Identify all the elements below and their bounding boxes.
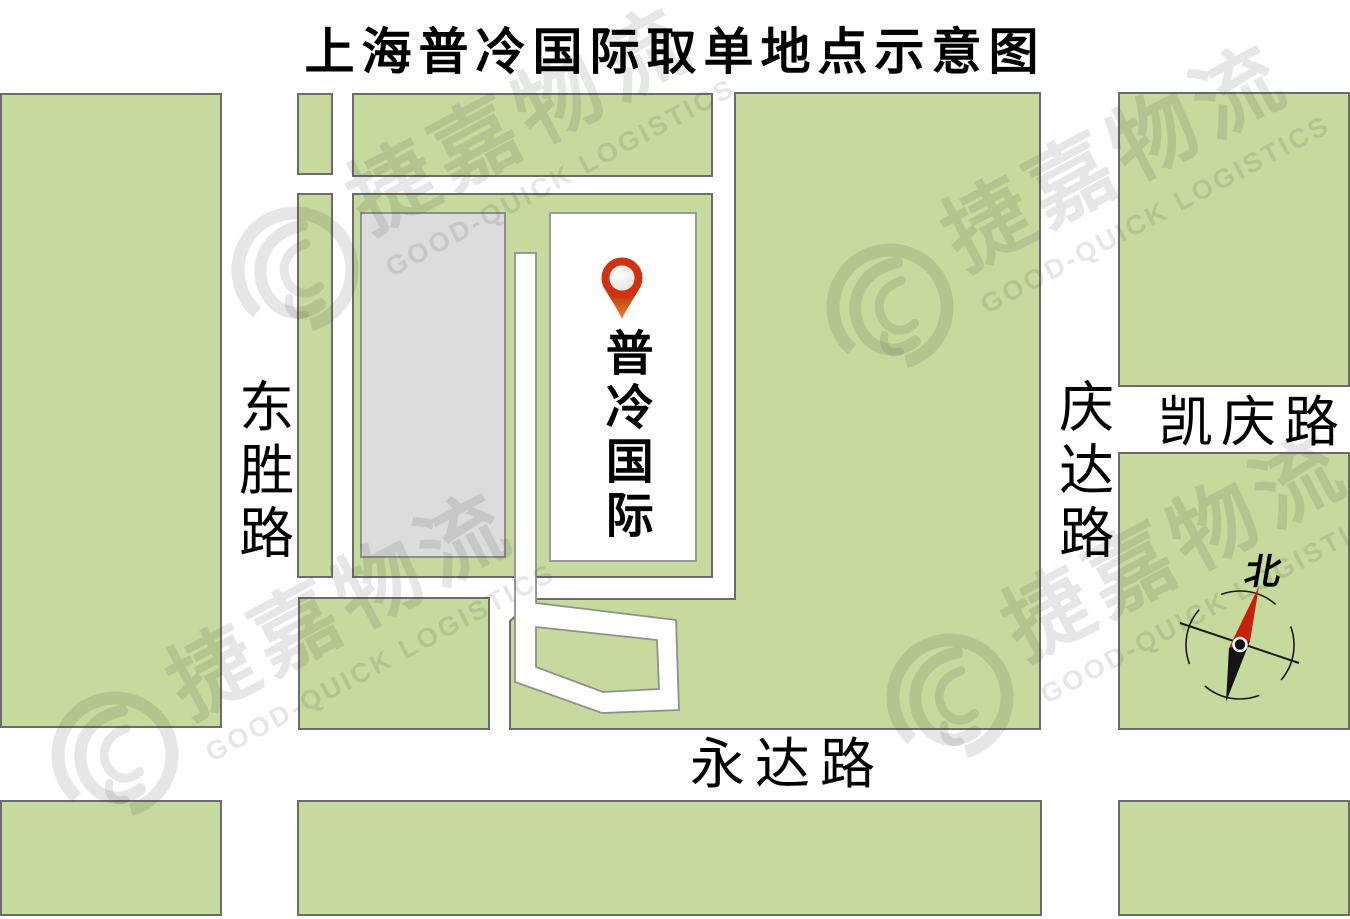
block-lower-mid <box>298 597 490 730</box>
block-west <box>0 93 222 728</box>
block-south-right <box>1118 800 1350 916</box>
map-canvas: 捷嘉物流 GOOD-QUICK LOGISTICS 捷嘉物流 GOOD-QUIC… <box>0 0 1350 919</box>
block-northeast <box>1118 92 1350 387</box>
watermark-logo-icon <box>795 212 984 401</box>
block-southeast <box>1118 452 1350 730</box>
road-label-yongda: 永达路 <box>690 734 885 796</box>
block-central-top <box>352 93 713 177</box>
block-south-left <box>0 800 222 916</box>
compass-north-label: 北 <box>1241 552 1284 592</box>
block-mid-strip-top <box>297 93 333 175</box>
block-mid-strip <box>297 193 333 578</box>
loop-island-block <box>536 627 659 692</box>
facility-label: 普冷国际 <box>597 328 651 544</box>
road-label-qingda: 庆达路 <box>1050 378 1112 567</box>
road-label-dongsheng: 东胜路 <box>230 378 292 567</box>
page-title: 上海普冷国际取单地点示意图 <box>0 24 1350 80</box>
warehouse-building <box>360 212 506 558</box>
road-label-kaiqing: 凯庆路 <box>1158 392 1347 454</box>
block-south-center <box>297 800 1042 916</box>
